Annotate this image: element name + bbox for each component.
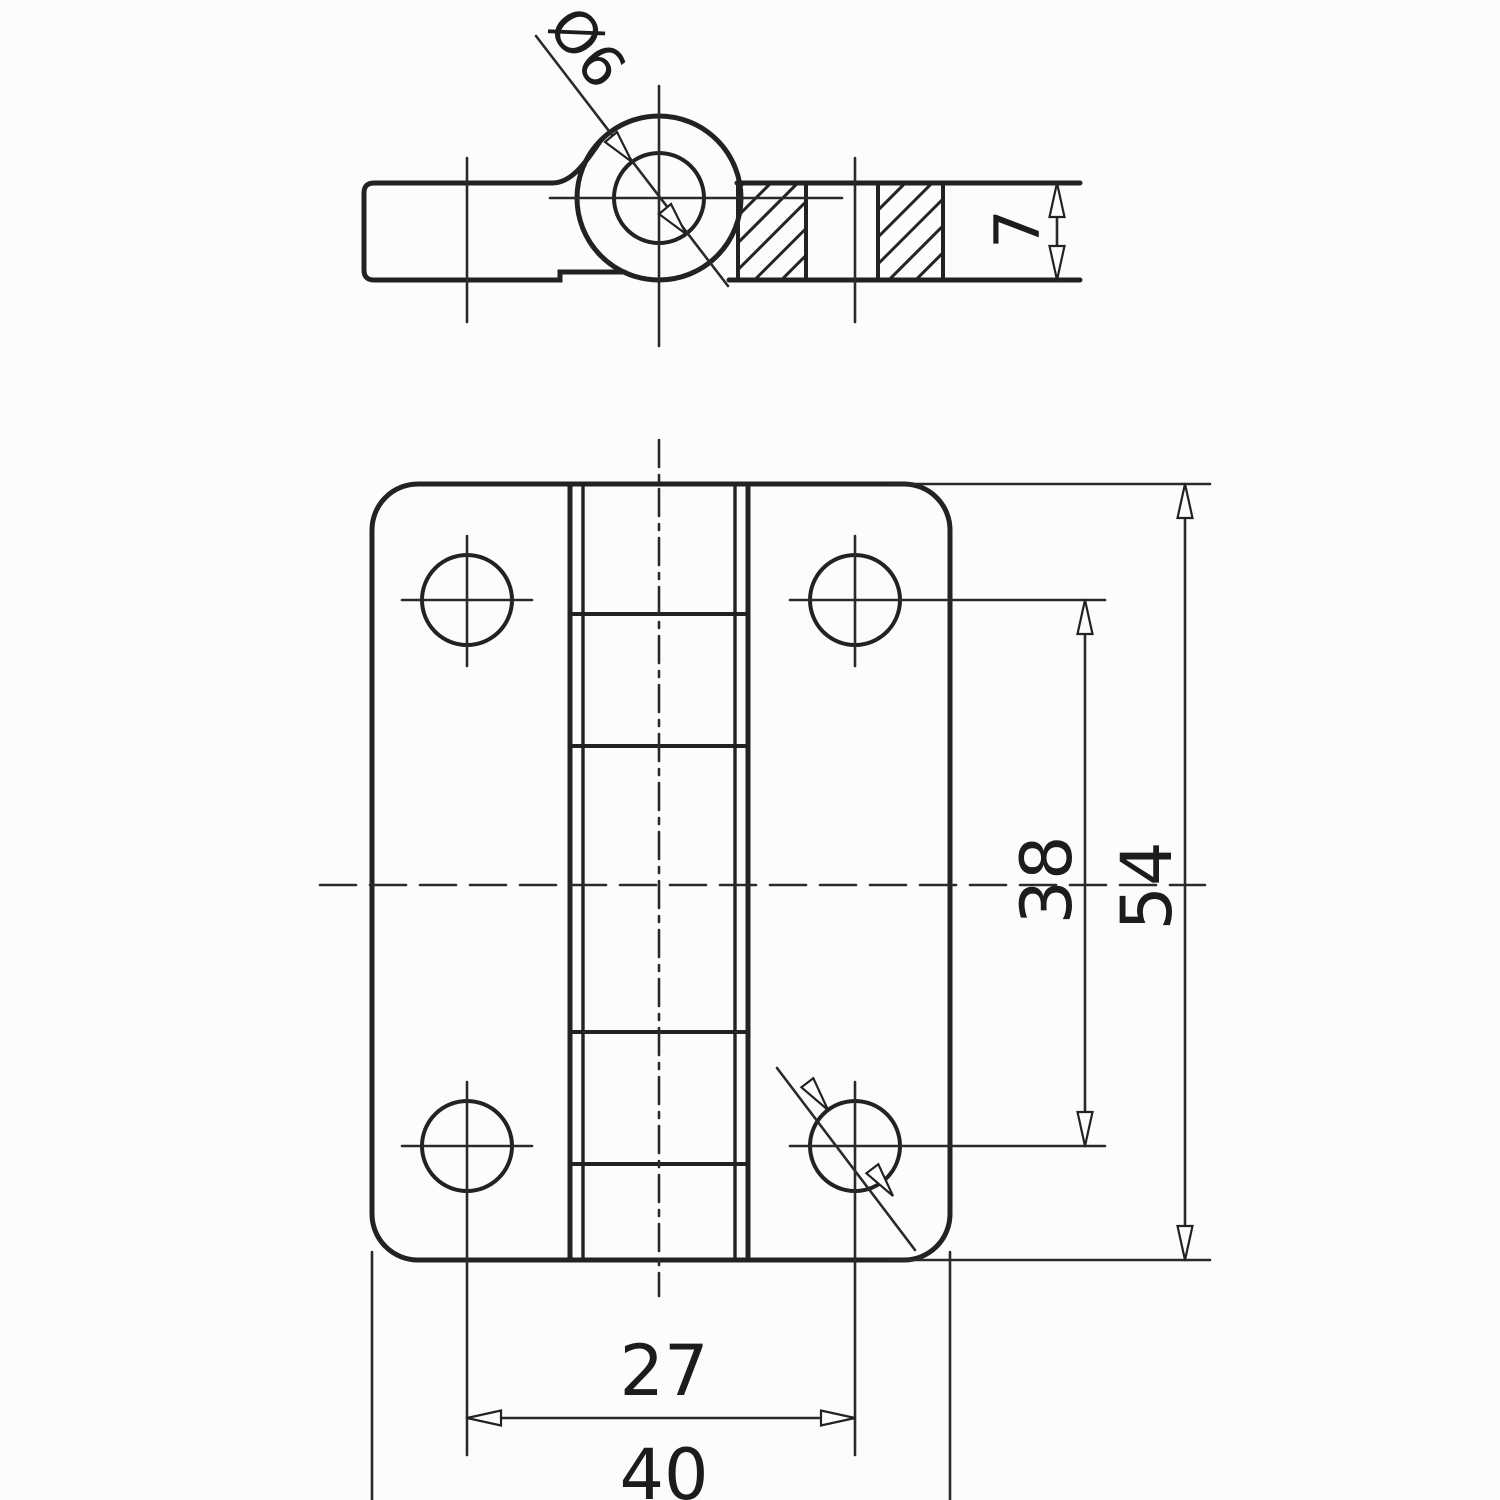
hinge-drawing-svg: Ø6 7 — [0, 0, 1500, 1500]
leader-arrow-lower — [659, 204, 686, 234]
hole-diameter-leader-line — [777, 1068, 915, 1250]
dim38-arrow-top — [1078, 600, 1093, 634]
dim-label-pin-diameter: Ø6 — [535, 0, 639, 101]
dim-label-hole-pitch-vertical: 38 — [1006, 835, 1088, 924]
dim27-arrow-right — [821, 1411, 855, 1426]
dim38-arrow-bottom — [1078, 1112, 1093, 1146]
hatch-section-right — [878, 183, 943, 280]
section-view: Ø6 7 — [364, 0, 1080, 346]
dim54-arrow-top — [1178, 484, 1193, 518]
dim54-arrow-bottom — [1178, 1226, 1193, 1260]
leader-arrow-upper — [605, 132, 632, 162]
dim-label-overall-height: 54 — [1106, 841, 1188, 930]
dim27-arrow-left — [467, 1411, 501, 1426]
thickness-arrow-bottom — [1050, 246, 1065, 280]
dim-label-hole-pitch-horizontal: 27 — [619, 1330, 708, 1412]
front-view: 38 54 27 40 — [320, 440, 1210, 1500]
dim-label-thickness: 7 — [981, 209, 1054, 248]
dim-label-overall-width: 40 — [619, 1434, 708, 1500]
technical-drawing-page: Ø6 7 — [0, 0, 1500, 1500]
